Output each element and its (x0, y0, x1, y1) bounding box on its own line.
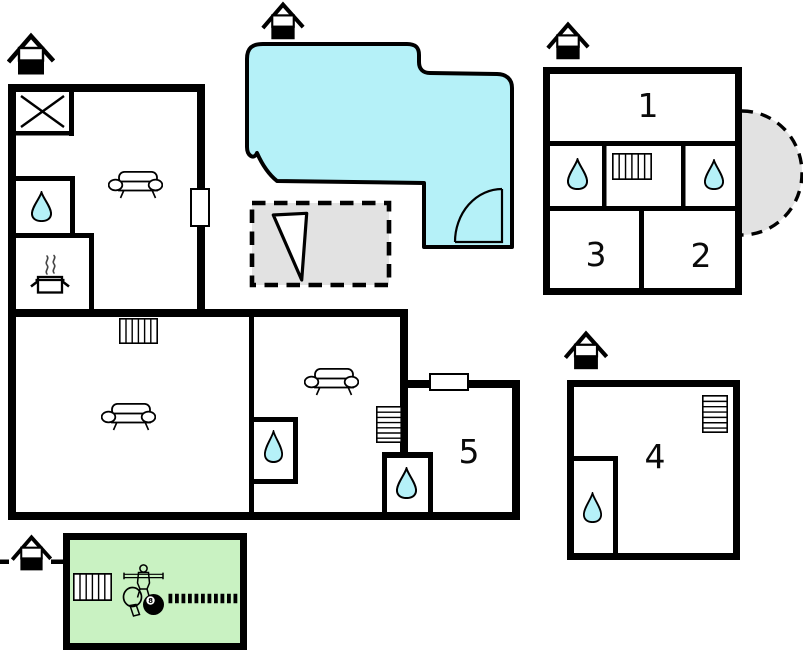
radiator-icon (74, 574, 111, 600)
boundary-dash (51, 560, 63, 565)
billiard-ball-icon: 8 (143, 594, 164, 615)
house-icon (9, 36, 54, 75)
window (430, 374, 468, 390)
radiator-icon (120, 319, 157, 343)
water-drop-icon (568, 159, 587, 189)
house-icon (565, 334, 606, 370)
games-room: 8 (63, 533, 247, 650)
water-drop-icon (32, 192, 51, 221)
cooking-pot-icon (31, 256, 69, 293)
house-icon (263, 5, 303, 40)
house-icon (12, 537, 50, 570)
radiator-icon (613, 154, 651, 179)
games-room-entrance (0, 537, 63, 570)
water-drop-icon (265, 432, 282, 463)
water-drop-icon (397, 468, 416, 498)
annex-building-4: 4 (567, 380, 740, 560)
terrace-dashed (252, 203, 389, 285)
terrace-semicircle (742, 111, 802, 235)
room-4-label: 4 (645, 437, 666, 476)
radiator-icon (377, 407, 401, 442)
billiard-ball-number: 8 (148, 597, 153, 605)
annex-building-123: 1 2 3 (543, 67, 802, 295)
room-1-label: 1 (638, 86, 659, 125)
room-2-label: 2 (691, 236, 712, 275)
sofa-icon (109, 172, 163, 198)
water-drop-icon (705, 160, 723, 189)
boundary-dash (0, 560, 9, 565)
steam-icon (46, 256, 55, 275)
room-5-label: 5 (459, 432, 480, 471)
room-3-label: 3 (586, 235, 607, 274)
water-drop-icon (584, 493, 601, 522)
floor-plan: 5 1 2 3 (0, 0, 803, 652)
cross-icon (21, 96, 64, 127)
sofa-icon (305, 369, 359, 395)
radiator-icon (703, 396, 727, 432)
house-icon (548, 25, 588, 60)
floor-plan-canvas: 5 1 2 3 (0, 0, 803, 652)
window (191, 189, 209, 226)
sofa-icon (102, 404, 156, 430)
